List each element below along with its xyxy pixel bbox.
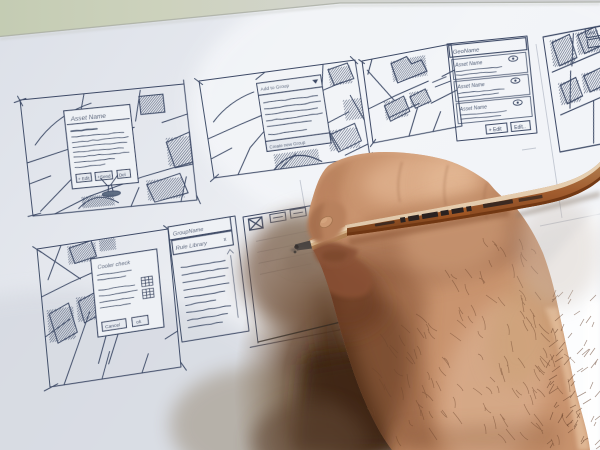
svg-text:Del: Del: [119, 172, 126, 178]
svg-text:Edit..: Edit..: [514, 124, 526, 131]
